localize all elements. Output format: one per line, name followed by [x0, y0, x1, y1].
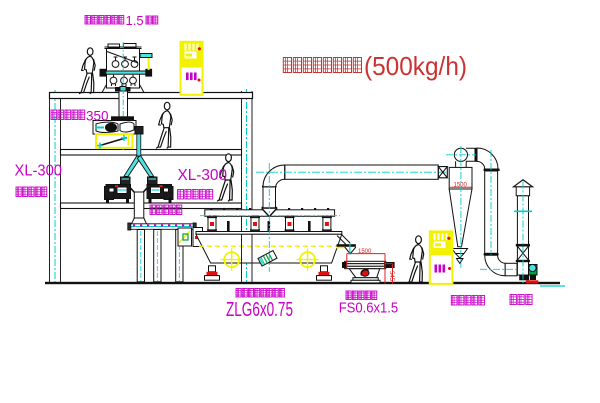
svg-text:1.5: 1.5 — [126, 13, 144, 28]
svg-text:1500: 1500 — [358, 249, 372, 255]
svg-text:545: 545 — [388, 271, 394, 282]
svg-text:(500kg/h): (500kg/h) — [364, 51, 467, 81]
svg-text:XL-300: XL-300 — [178, 167, 228, 184]
svg-text:ZLG6x0.75: ZLG6x0.75 — [226, 299, 293, 321]
svg-text:FS0.6x1.5: FS0.6x1.5 — [339, 300, 399, 317]
svg-text:350: 350 — [86, 109, 109, 124]
svg-text:XL-300: XL-300 — [15, 163, 63, 180]
